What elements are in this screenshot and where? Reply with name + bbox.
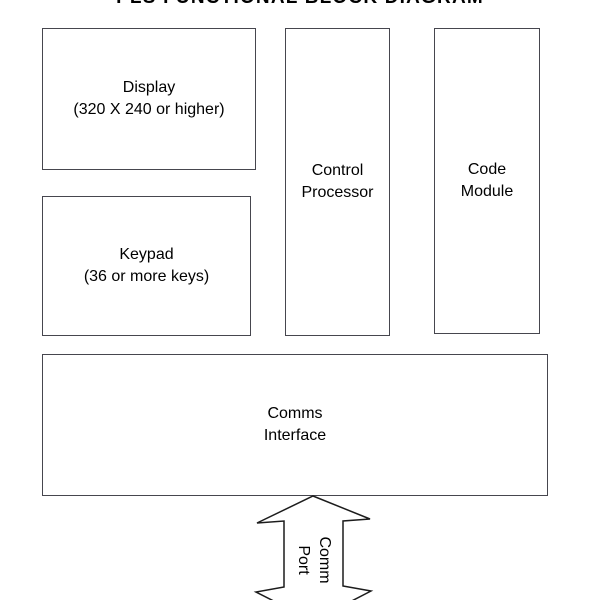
diagram-title: PLS FUNCTIONAL BLOCK DIAGRAM xyxy=(0,0,600,8)
keypad-block-label-line2: (36 or more keys) xyxy=(84,266,209,288)
control-processor-label-line2: Processor xyxy=(301,182,373,204)
code-module-label-line1: Code xyxy=(468,159,506,181)
comm-port-label-line2: Port xyxy=(293,510,314,600)
comms-interface-label-line1: Comms xyxy=(267,403,322,425)
control-processor-block: Control Processor xyxy=(285,28,390,336)
display-block: Display (320 X 240 or higher) xyxy=(42,28,256,170)
keypad-block-label-line1: Keypad xyxy=(119,244,173,266)
comms-interface-block: Comms Interface xyxy=(42,354,548,496)
keypad-block: Keypad (36 or more keys) xyxy=(42,196,251,336)
block-diagram-canvas: PLS FUNCTIONAL BLOCK DIAGRAM Display (32… xyxy=(0,0,600,600)
control-processor-label-line1: Control xyxy=(312,160,364,182)
comms-interface-label-line2: Interface xyxy=(264,425,326,447)
comm-port-label: Comm Port xyxy=(291,510,335,600)
code-module-label-line2: Module xyxy=(461,181,513,203)
display-block-label-line1: Display xyxy=(123,77,175,99)
comm-port-label-line1: Comm xyxy=(314,510,335,600)
code-module-block: Code Module xyxy=(434,28,540,334)
display-block-label-line2: (320 X 240 or higher) xyxy=(73,99,224,121)
